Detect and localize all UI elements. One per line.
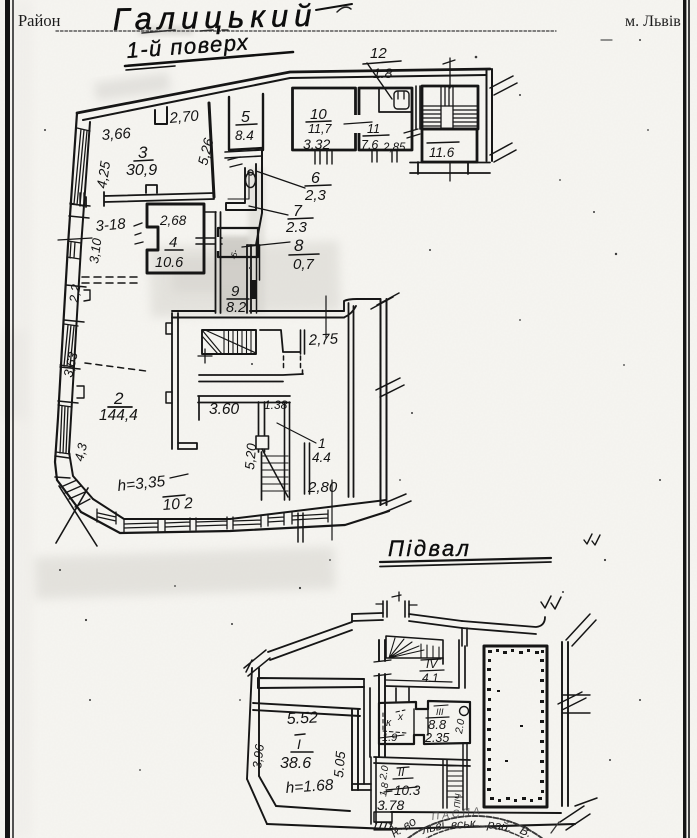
svg-text:5: 5: [241, 109, 250, 126]
svg-text:7: 7: [293, 203, 303, 220]
svg-text:2.35: 2.35: [424, 731, 449, 745]
svg-text:1.8: 1.8: [373, 65, 393, 81]
svg-text:0,7: 0,7: [293, 256, 315, 273]
svg-text:11.6: 11.6: [429, 145, 455, 160]
svg-text:144,4: 144,4: [99, 407, 138, 424]
svg-text:3,66: 3,66: [101, 125, 132, 144]
svg-text:3.32: 3.32: [303, 136, 330, 152]
svg-text:III: III: [436, 707, 444, 717]
svg-text:2,85: 2,85: [382, 142, 406, 154]
svg-text:2: 2: [113, 389, 124, 408]
svg-text:11: 11: [367, 122, 380, 136]
svg-text:3.78: 3.78: [377, 797, 404, 813]
svg-text:8: 8: [294, 236, 304, 255]
svg-text:3,96: 3,96: [250, 743, 267, 769]
svg-text:5.52: 5.52: [286, 709, 318, 728]
svg-text:х: х: [397, 712, 404, 723]
svg-text:к: к: [386, 717, 392, 729]
svg-text:2,3: 2,3: [304, 187, 327, 204]
svg-text:5,20: 5,20: [242, 442, 259, 470]
svg-text:ПІЧ: ПІЧ: [452, 793, 463, 808]
svg-text:10.3: 10.3: [394, 783, 421, 798]
svg-text:4.1: 4.1: [422, 671, 439, 685]
svg-text:8.2: 8.2: [226, 300, 246, 316]
svg-text:12: 12: [370, 45, 387, 62]
svg-text:3-18: 3-18: [95, 215, 127, 235]
svg-text:Підвал: Підвал: [388, 536, 471, 561]
svg-text:8.4: 8.4: [235, 128, 254, 143]
svg-text:10 2: 10 2: [162, 495, 194, 514]
svg-text:9: 9: [231, 283, 240, 300]
svg-text:2,70: 2,70: [168, 107, 200, 127]
svg-text:Район: Район: [18, 11, 61, 30]
svg-text:4: 4: [169, 234, 177, 251]
svg-text:м. Львів: м. Львів: [625, 13, 681, 30]
svg-text:2,80: 2,80: [307, 479, 338, 496]
svg-text:3.60: 3.60: [209, 401, 240, 418]
svg-text:11,7: 11,7: [308, 122, 332, 136]
svg-text:2,68: 2,68: [159, 213, 187, 228]
svg-text:6: 6: [311, 170, 320, 187]
svg-text:10: 10: [310, 106, 327, 123]
svg-text:4.4: 4.4: [312, 450, 331, 465]
svg-text:2,2: 2,2: [66, 283, 84, 305]
svg-text:II: II: [398, 767, 405, 779]
svg-text:2,75: 2,75: [307, 330, 339, 349]
svg-text:8.8: 8.8: [428, 717, 447, 732]
svg-text:1.38: 1.38: [264, 398, 288, 412]
svg-text:3: 3: [138, 143, 148, 162]
svg-text:7.6: 7.6: [361, 138, 378, 152]
svg-text:-5-: -5-: [229, 249, 240, 261]
svg-text:10.6: 10.6: [155, 255, 184, 271]
svg-text:38.6: 38.6: [280, 755, 311, 772]
svg-text:1: 1: [318, 435, 326, 451]
svg-text:1.9: 1.9: [382, 732, 397, 744]
svg-text:I: I: [297, 736, 301, 752]
svg-text:30,9: 30,9: [126, 162, 157, 179]
svg-text:5.05: 5.05: [331, 750, 348, 778]
svg-text:2.3: 2.3: [285, 219, 308, 236]
svg-text:h=1.68: h=1.68: [285, 777, 334, 797]
